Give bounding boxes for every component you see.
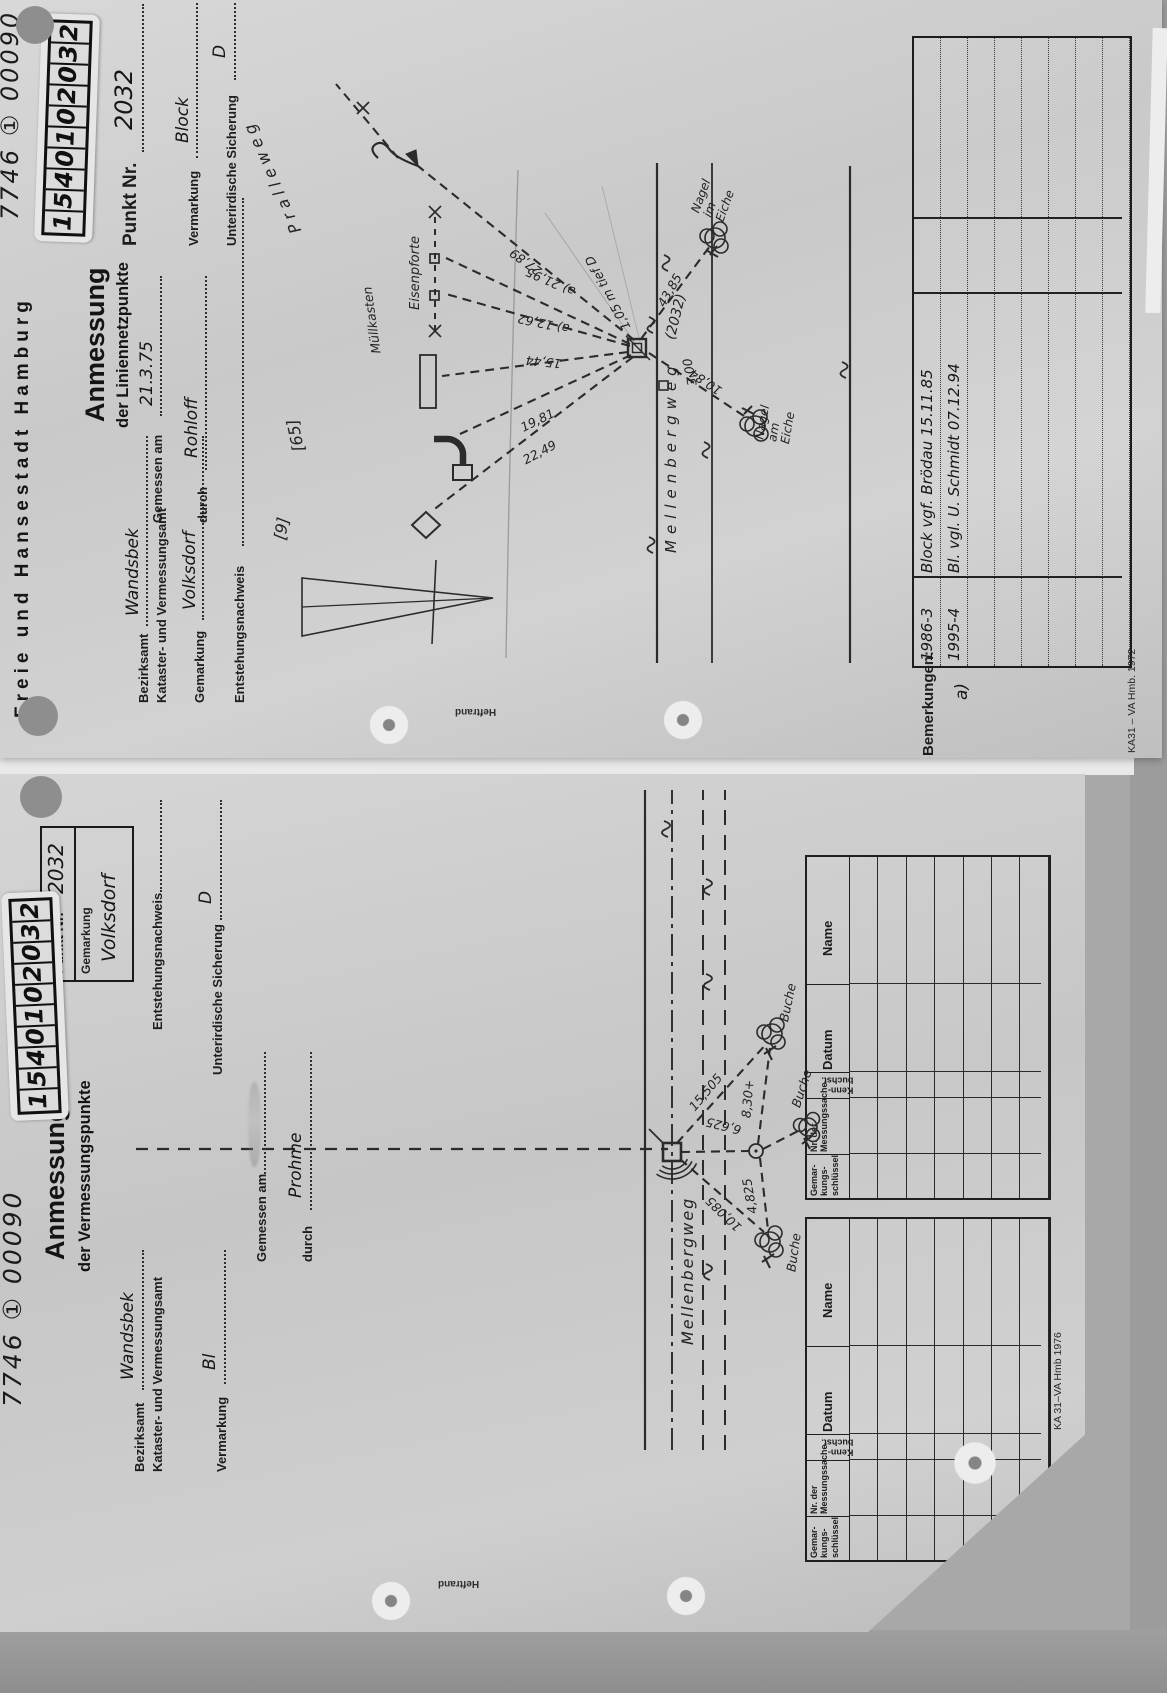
form-subtitle: der Liniennetzpunkte [114, 262, 133, 428]
table-row [1049, 38, 1076, 666]
house-number-9: [9] [270, 516, 293, 542]
squiggle-mark [662, 821, 670, 837]
binder-ring [663, 1573, 709, 1619]
durch-value: Rohloff [182, 398, 202, 458]
durch-value: Prohme [286, 1133, 306, 1198]
bent-pipe-icon [434, 439, 472, 480]
pencil-boundary-line [506, 170, 518, 658]
squiggle-mark [704, 1264, 712, 1280]
bemerkungen-table: 1986-3 Block vgf. Brödau 15.11.85 1995-4… [912, 36, 1132, 668]
eisenpforte-label: Eisenpforte [408, 236, 423, 310]
table-row [907, 1219, 935, 1560]
sticker-digit: 3 [12, 921, 51, 944]
table-row [964, 857, 992, 1198]
table-row: 1986-3 Block vgf. Brödau 15.11.85 [914, 38, 941, 666]
binder-ring [950, 1438, 1000, 1488]
table-row [878, 1219, 906, 1560]
gemarkung-value: Volksdorf [180, 531, 200, 610]
gemarkung-label: Gemarkung [192, 631, 207, 703]
amt-label: Kataster- und Vermessungsamt [154, 508, 169, 703]
gemessen-line [160, 276, 162, 416]
table-column-line [849, 1097, 1041, 1098]
sticker-digit: 5 [19, 1068, 58, 1091]
punch-hole [16, 6, 54, 44]
durch-line [205, 276, 207, 470]
id-sticker: 1 5 4 0 1 0 2 0 3 2 [34, 13, 100, 243]
binder-ring [368, 1578, 414, 1624]
tree-icon [755, 1226, 783, 1268]
sticker-digit: 0 [17, 1026, 56, 1049]
scanner-background-bottom [0, 1630, 1167, 1693]
table-row [992, 1219, 1020, 1560]
sicherung-label: Unterirdische Sicherung [224, 95, 239, 246]
form-title: Anmessung [40, 1105, 71, 1260]
sticker-digit: 0 [13, 942, 52, 965]
document-page-2: 7746 ① 00090 Anmessung der Vermessungspu… [0, 774, 1085, 1632]
punch-hole [20, 776, 62, 818]
sticker-digit: 2 [14, 963, 53, 986]
sticker-digit: 0 [15, 984, 54, 1007]
table-row [935, 1219, 963, 1560]
table-column-line [849, 983, 1041, 984]
squiggle-mark [647, 537, 654, 553]
note-a: a) [952, 683, 972, 700]
sticker-digit: 2 [51, 22, 90, 44]
tree-label-nagel-am-eiche: Nagel am Eiche [753, 404, 798, 445]
sicherung-value: D [210, 45, 230, 58]
sticker-digit: 4 [46, 169, 85, 191]
form-title: Anmessung [80, 267, 111, 422]
entstehung-label: Entstehungsnachweis [232, 566, 247, 703]
gemessen-value: 21.3.75 [137, 341, 157, 406]
sticker-digit: 0 [48, 106, 87, 128]
table-column-line [914, 217, 1122, 219]
punkt-nr-value: 2032 [110, 69, 138, 130]
bezirksamt-value: Wandsbek [123, 528, 143, 616]
table-row [964, 1219, 992, 1560]
sticker-digit: 2 [11, 900, 50, 923]
table-row [935, 857, 963, 1198]
year-cell: 1986-3 [918, 578, 936, 666]
gemarkung-line [202, 436, 204, 620]
form-subtitle: der Vermessungspunkte [76, 1080, 95, 1272]
diamond-marker [412, 512, 440, 538]
durch-label: durch [300, 1226, 315, 1262]
table-row [1022, 38, 1049, 666]
table-column-line [914, 292, 1122, 294]
vermarkung-line [196, 3, 198, 158]
durch-line [310, 1052, 312, 1210]
table-row [992, 857, 1020, 1198]
gemarkung-label: Gemarkung [79, 907, 93, 974]
paper-gap-strip [0, 757, 1134, 775]
bezirksamt-label: Bezirksamt [136, 634, 151, 703]
vermarkung-value: Block [173, 97, 193, 143]
vermarkung-label: Vermarkung [186, 171, 201, 246]
form-vermessungspunkte: 7746 ① 00090 Anmessung der Vermessungspu… [0, 774, 1085, 1632]
x-mark [357, 102, 369, 114]
sticker-digit: 1 [20, 1089, 59, 1112]
sticker-digit: 3 [50, 43, 89, 65]
sticker-digit: 4 [18, 1047, 57, 1070]
durch-label: durch [195, 487, 210, 523]
street-label-mellenbergweg: Mellenbergweg [678, 1197, 697, 1345]
tree-icon [700, 222, 728, 257]
street-label-mellenbergweg: Mellenbergweg [662, 360, 680, 553]
heftrand-label: Heftrand [455, 706, 496, 717]
sticker-digit: 1 [44, 211, 83, 233]
punkt-nr-value: 2032 [44, 843, 68, 894]
table-column-line [849, 1071, 1041, 1072]
corner-file-number: 7746 ① 00090 [0, 10, 24, 220]
document-page-1: Freie und Hansestadt Hamburg 7746 ① 0009… [0, 0, 1162, 758]
table-column-line [849, 1345, 1041, 1346]
punkt-nr-line [142, 4, 144, 152]
sticker-digit: 1 [16, 1005, 55, 1028]
form-liniennetzpunkte: Freie und Hansestadt Hamburg 7746 ① 0009… [0, 0, 1162, 758]
punkt-nr-label: Punkt Nr. [120, 163, 142, 246]
sticker-digit: 0 [49, 64, 88, 86]
gemessen-line [264, 1052, 266, 1174]
table-row [878, 857, 906, 1198]
muellkasten-box [420, 355, 436, 408]
table-column-line [849, 1459, 1041, 1460]
binder-ring [366, 702, 412, 748]
id-sticker: 1 5 4 0 1 0 2 0 3 2 [1, 891, 69, 1121]
squiggle-mark [662, 255, 669, 271]
gemarkung-value: Volksdorf [98, 874, 120, 962]
squiggle-mark [704, 974, 712, 990]
eisenpforte-fence [429, 206, 441, 337]
note-cell: Block vgf. Brödau 15.11.85 [918, 294, 936, 578]
year-cell: 1995-4 [945, 578, 963, 666]
faded-pencil-entry [248, 1082, 261, 1167]
sicherung-line [234, 3, 236, 80]
sticker-digit: 5 [45, 190, 84, 212]
form-code: KA31 – VA Hmb. 1972 [1126, 649, 1138, 753]
corner-file-number: 7746 ① 00090 [0, 1190, 27, 1407]
table-row [907, 857, 935, 1198]
tree-icon [757, 1018, 785, 1060]
squiggle-mark [840, 362, 847, 378]
table-row [1020, 1219, 1048, 1560]
table-column-line [914, 576, 1122, 578]
sticker-digit: 1 [47, 127, 86, 149]
table-column-line [849, 1515, 1041, 1516]
sticker-digit-boxes: 1 5 4 0 1 0 2 0 3 2 [41, 19, 93, 236]
table-row [1020, 857, 1048, 1198]
gemessen-label: Gemessen am [254, 1174, 269, 1262]
hook-pole-icon [372, 143, 418, 166]
gemessen-label: Gemessen am [150, 435, 165, 523]
scanned-page: Freie und Hansestadt Hamburg 7746 ① 0009… [0, 0, 1167, 1693]
squiggle-mark [702, 442, 709, 458]
entstehung-line [242, 198, 244, 546]
sticker-digit: 0 [47, 148, 86, 170]
table-row: 1995-4 Bl. vgl. U. Schmidt 07.12.94 [941, 38, 968, 666]
tree-icon [794, 1113, 820, 1150]
table-row [1076, 38, 1103, 666]
form-code: KA 31–VA Hmb 1976 [1052, 1332, 1064, 1430]
note-cell: Bl. vgl. U. Schmidt 07.12.94 [945, 294, 963, 578]
punch-hole [18, 696, 58, 736]
heftrand-label: Heftrand [438, 1578, 479, 1589]
table-column-line [849, 1433, 1041, 1434]
squiggle-mark [704, 879, 712, 895]
sticker-digit-boxes: 1 5 4 0 1 0 2 0 3 2 [8, 897, 61, 1115]
sticker-digit: 2 [49, 85, 88, 107]
table-row [995, 38, 1022, 666]
bezirksamt-line [146, 436, 148, 626]
box-divider [74, 828, 76, 980]
table-column-line [849, 1153, 1041, 1154]
hamburg-header: Freie und Hansestadt Hamburg [12, 296, 34, 718]
table-row [1103, 38, 1130, 666]
table-row [968, 38, 995, 666]
north-arrow-icon [302, 560, 493, 644]
sketch-drawing-1 [250, 0, 930, 758]
binder-ring [660, 697, 706, 743]
